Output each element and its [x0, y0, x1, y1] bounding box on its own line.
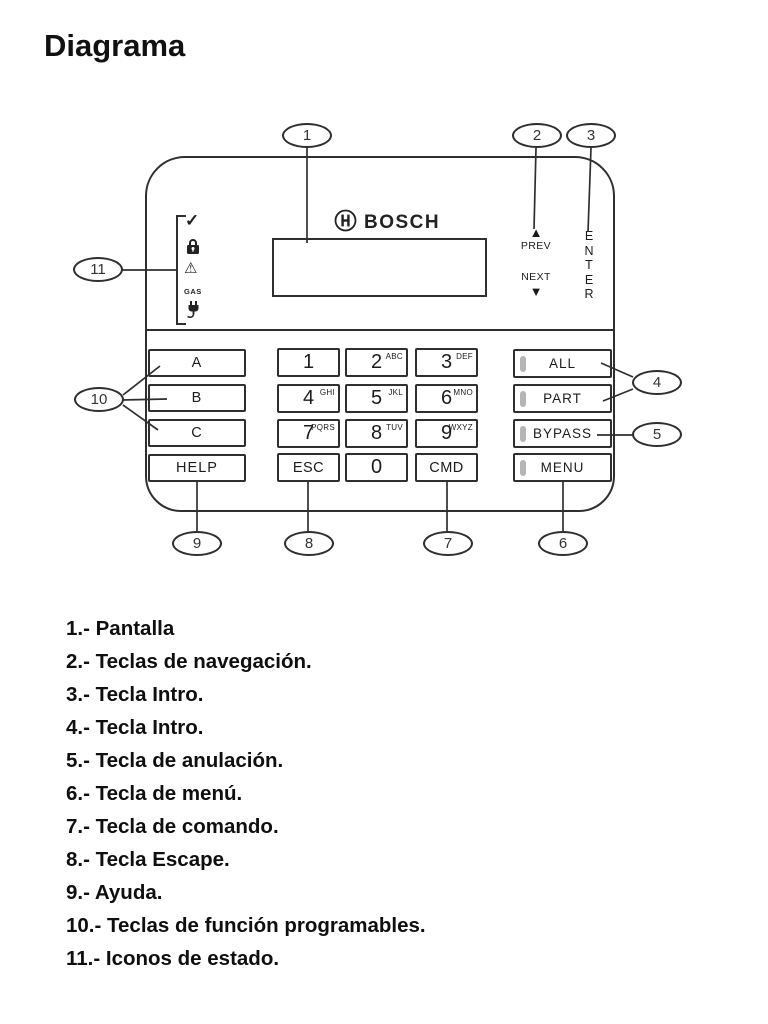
callout-7: 7 — [423, 531, 473, 556]
callout-number: 2 — [533, 127, 541, 144]
bosch-brand-text: BOSCH — [364, 212, 440, 234]
callout-9: 9 — [172, 531, 222, 556]
callout-number: 6 — [559, 535, 567, 552]
key-letters: DEF — [456, 352, 473, 361]
callout-4: 4 — [632, 370, 682, 395]
gas-icon: GAS — [184, 287, 202, 296]
help-key-label: HELP — [176, 460, 218, 476]
bypass-key: BYPASS — [513, 419, 612, 448]
display-screen — [272, 238, 487, 297]
callout-8: 8 — [284, 531, 334, 556]
prev-key-label: PREV — [511, 241, 561, 252]
numpad-key-1: 1 — [277, 348, 340, 377]
bosch-symbol-icon — [334, 209, 357, 237]
callout-number: 9 — [193, 535, 201, 552]
legend-item-9: 9.- Ayuda. — [66, 876, 426, 909]
callout-11: 11 — [73, 257, 123, 282]
lock-icon — [186, 238, 200, 260]
callout-10: 10 — [74, 387, 124, 412]
enter-key-label: ENTER — [582, 229, 596, 302]
function-key-a-label: A — [192, 355, 203, 371]
next-key-label: NEXT — [511, 272, 561, 283]
led-indicator — [520, 426, 526, 442]
numpad-key-5: 5JKL — [345, 384, 408, 413]
led-indicator — [520, 391, 526, 407]
key-digit: 2 — [371, 351, 382, 374]
callout-number: 7 — [444, 535, 452, 552]
led-indicator — [520, 460, 526, 476]
keypad-panel-divider — [147, 329, 613, 331]
callout-number: 10 — [91, 391, 108, 408]
legend-item-5: 5.- Tecla de anulación. — [66, 744, 426, 777]
legend-item-11: 11.- Iconos de estado. — [66, 942, 426, 975]
manual-page: Diagrama BOSCH ✓ ⚠ GAS — [0, 0, 768, 1024]
legend-item-8: 8.- Tecla Escape. — [66, 843, 426, 876]
key-digit: 8 — [371, 422, 382, 445]
function-key-b-label: B — [192, 390, 203, 406]
next-arrow-icon: ▼ — [511, 285, 561, 298]
key-letters: TUV — [386, 423, 403, 432]
callout-2: 2 — [512, 123, 562, 148]
power-plug-icon — [186, 301, 201, 324]
part-key-label: PART — [543, 391, 582, 406]
callout-number: 5 — [653, 426, 661, 443]
numpad-key-0: 0 — [345, 453, 408, 482]
callout-5: 5 — [632, 422, 682, 447]
numpad-key-4: 4GHI — [277, 384, 340, 413]
menu-key: MENU — [513, 453, 612, 482]
nav-keys: ▲ PREV NEXT ▼ — [511, 226, 561, 298]
legend-item-4: 4.- Tecla Intro. — [66, 711, 426, 744]
callout-1: 1 — [282, 123, 332, 148]
key-letters: PQRS — [311, 423, 335, 432]
legend-item-10: 10.- Teclas de función programables. — [66, 909, 426, 942]
key-letters: MNO — [453, 388, 473, 397]
numpad-key-3: 3DEF — [415, 348, 478, 377]
cmd-key-label: CMD — [429, 460, 464, 476]
key-digit: 0 — [371, 456, 382, 479]
legend-item-1: 1.- Pantalla — [66, 612, 426, 645]
function-key-a: A — [148, 349, 246, 377]
warning-icon: ⚠ — [184, 259, 197, 277]
callout-number: 3 — [587, 127, 595, 144]
legend-item-7: 7.- Tecla de comando. — [66, 810, 426, 843]
esc-key: ESC — [277, 453, 340, 482]
key-digit: 6 — [441, 387, 452, 410]
function-key-c-label: C — [191, 425, 202, 441]
page-title: Diagrama — [44, 28, 185, 64]
esc-key-label: ESC — [293, 460, 324, 476]
numpad-key-2: 2ABC — [345, 348, 408, 377]
key-letters: JKL — [388, 388, 403, 397]
key-digit: 5 — [371, 387, 382, 410]
menu-key-label: MENU — [541, 460, 585, 475]
callout-number: 11 — [90, 261, 106, 278]
key-letters: ABC — [386, 352, 403, 361]
key-letters: WXYZ — [449, 423, 473, 432]
key-digit: 3 — [441, 351, 452, 374]
function-key-c: C — [148, 419, 246, 447]
prev-arrow-icon: ▲ — [511, 226, 561, 239]
legend-item-6: 6.- Tecla de menú. — [66, 777, 426, 810]
all-key-label: ALL — [549, 356, 576, 371]
key-letters: GHI — [320, 388, 335, 397]
numpad-key-6: 6MNO — [415, 384, 478, 413]
bosch-logo: BOSCH — [334, 209, 440, 237]
help-key: HELP — [148, 454, 246, 482]
callout-6: 6 — [538, 531, 588, 556]
legend-item-3: 3.- Tecla Intro. — [66, 678, 426, 711]
function-key-b: B — [148, 384, 246, 412]
callout-number: 1 — [303, 127, 311, 144]
part-key: PART — [513, 384, 612, 413]
key-digit: 4 — [303, 387, 314, 410]
callout-number: 4 — [653, 374, 661, 391]
callout-3: 3 — [566, 123, 616, 148]
all-key: ALL — [513, 349, 612, 378]
numpad-key-7: 7PQRS — [277, 419, 340, 448]
bypass-key-label: BYPASS — [533, 426, 592, 441]
numpad-key-9: 9WXYZ — [415, 419, 478, 448]
legend-item-2: 2.- Teclas de navegación. — [66, 645, 426, 678]
legend: 1.- Pantalla 2.- Teclas de navegación. 3… — [66, 612, 426, 975]
led-indicator — [520, 356, 526, 372]
callout-number: 8 — [305, 535, 313, 552]
check-icon: ✓ — [185, 211, 199, 231]
numpad-key-8: 8TUV — [345, 419, 408, 448]
key-digit: 1 — [303, 351, 314, 374]
cmd-key: CMD — [415, 453, 478, 482]
